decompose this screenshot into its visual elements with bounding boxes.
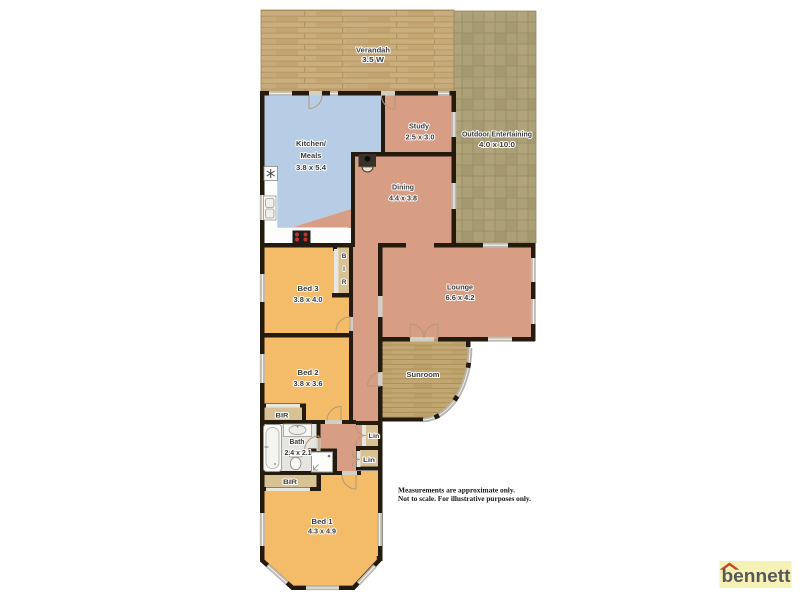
svg-text:4.3 x 4.9: 4.3 x 4.9 bbox=[308, 527, 336, 536]
svg-text:Sunroom: Sunroom bbox=[407, 370, 440, 379]
svg-text:4.0 x 10.0: 4.0 x 10.0 bbox=[479, 140, 515, 149]
svg-text:2.4 x 2.1: 2.4 x 2.1 bbox=[285, 448, 312, 457]
svg-text:bennett: bennett bbox=[722, 566, 791, 586]
svg-text:Bed 3: Bed 3 bbox=[298, 284, 319, 293]
svg-text:3.8 x 3.6: 3.8 x 3.6 bbox=[294, 379, 323, 388]
svg-text:BIR: BIR bbox=[276, 413, 289, 420]
svg-text:Verandah: Verandah bbox=[356, 46, 390, 55]
svg-text:I: I bbox=[343, 266, 345, 273]
svg-text:Lin: Lin bbox=[369, 433, 380, 440]
svg-text:Not to scale. For illustrativ: Not to scale. For illustrative purposes … bbox=[398, 494, 531, 503]
svg-text:Study: Study bbox=[409, 122, 430, 131]
svg-text:Dining: Dining bbox=[392, 183, 414, 192]
svg-text:Outdoor Entertaining: Outdoor Entertaining bbox=[462, 130, 532, 139]
svg-text:R: R bbox=[342, 279, 347, 286]
svg-text:3.8 x 5.4: 3.8 x 5.4 bbox=[296, 163, 326, 172]
svg-text:Lin: Lin bbox=[363, 457, 375, 464]
svg-text:3.8 x 4.0: 3.8 x 4.0 bbox=[294, 295, 323, 304]
svg-text:2.5 x 3.0: 2.5 x 3.0 bbox=[406, 133, 435, 142]
svg-text:4.4 x 3.8: 4.4 x 3.8 bbox=[389, 194, 417, 203]
svg-text:Lounge: Lounge bbox=[447, 283, 473, 292]
svg-text:BIR: BIR bbox=[283, 479, 297, 486]
svg-text:Kitchen/: Kitchen/ bbox=[296, 139, 326, 148]
svg-text:Bath: Bath bbox=[290, 437, 305, 446]
svg-text:3.5 W: 3.5 W bbox=[362, 55, 384, 64]
svg-text:6.6 x 4.2: 6.6 x 4.2 bbox=[446, 293, 475, 302]
svg-text:B: B bbox=[342, 253, 347, 260]
svg-text:Bed 1: Bed 1 bbox=[312, 517, 333, 526]
svg-text:Bed 2: Bed 2 bbox=[298, 368, 319, 377]
svg-text:Meals: Meals bbox=[301, 151, 322, 160]
